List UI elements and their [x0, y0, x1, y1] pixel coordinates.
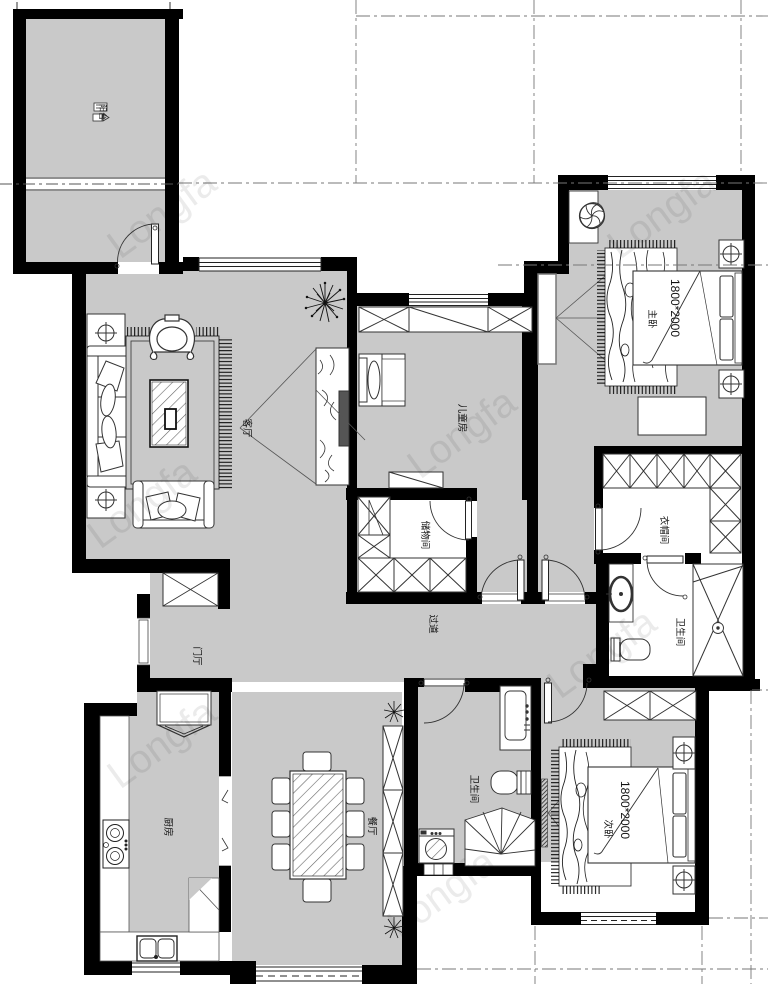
svg-text:过道: 过道 [427, 614, 439, 634]
svg-text:衣帽间: 衣帽间 [658, 516, 670, 545]
svg-text:1800*2000: 1800*2000 [668, 279, 682, 337]
svg-text:次卧: 次卧 [602, 819, 614, 839]
svg-text:储物间: 储物间 [419, 521, 431, 550]
svg-text:客厅: 客厅 [241, 418, 253, 438]
svg-text:阳台: 阳台 [98, 104, 108, 120]
svg-text:门厅: 门厅 [191, 646, 203, 666]
svg-text:卫生间: 卫生间 [674, 618, 686, 647]
svg-text:1800*2000: 1800*2000 [618, 781, 632, 839]
svg-text:卫生间: 卫生间 [468, 775, 480, 804]
svg-text:主卧: 主卧 [646, 309, 658, 329]
svg-text:餐厅: 餐厅 [366, 816, 378, 836]
svg-text:厨房: 厨房 [162, 817, 174, 836]
